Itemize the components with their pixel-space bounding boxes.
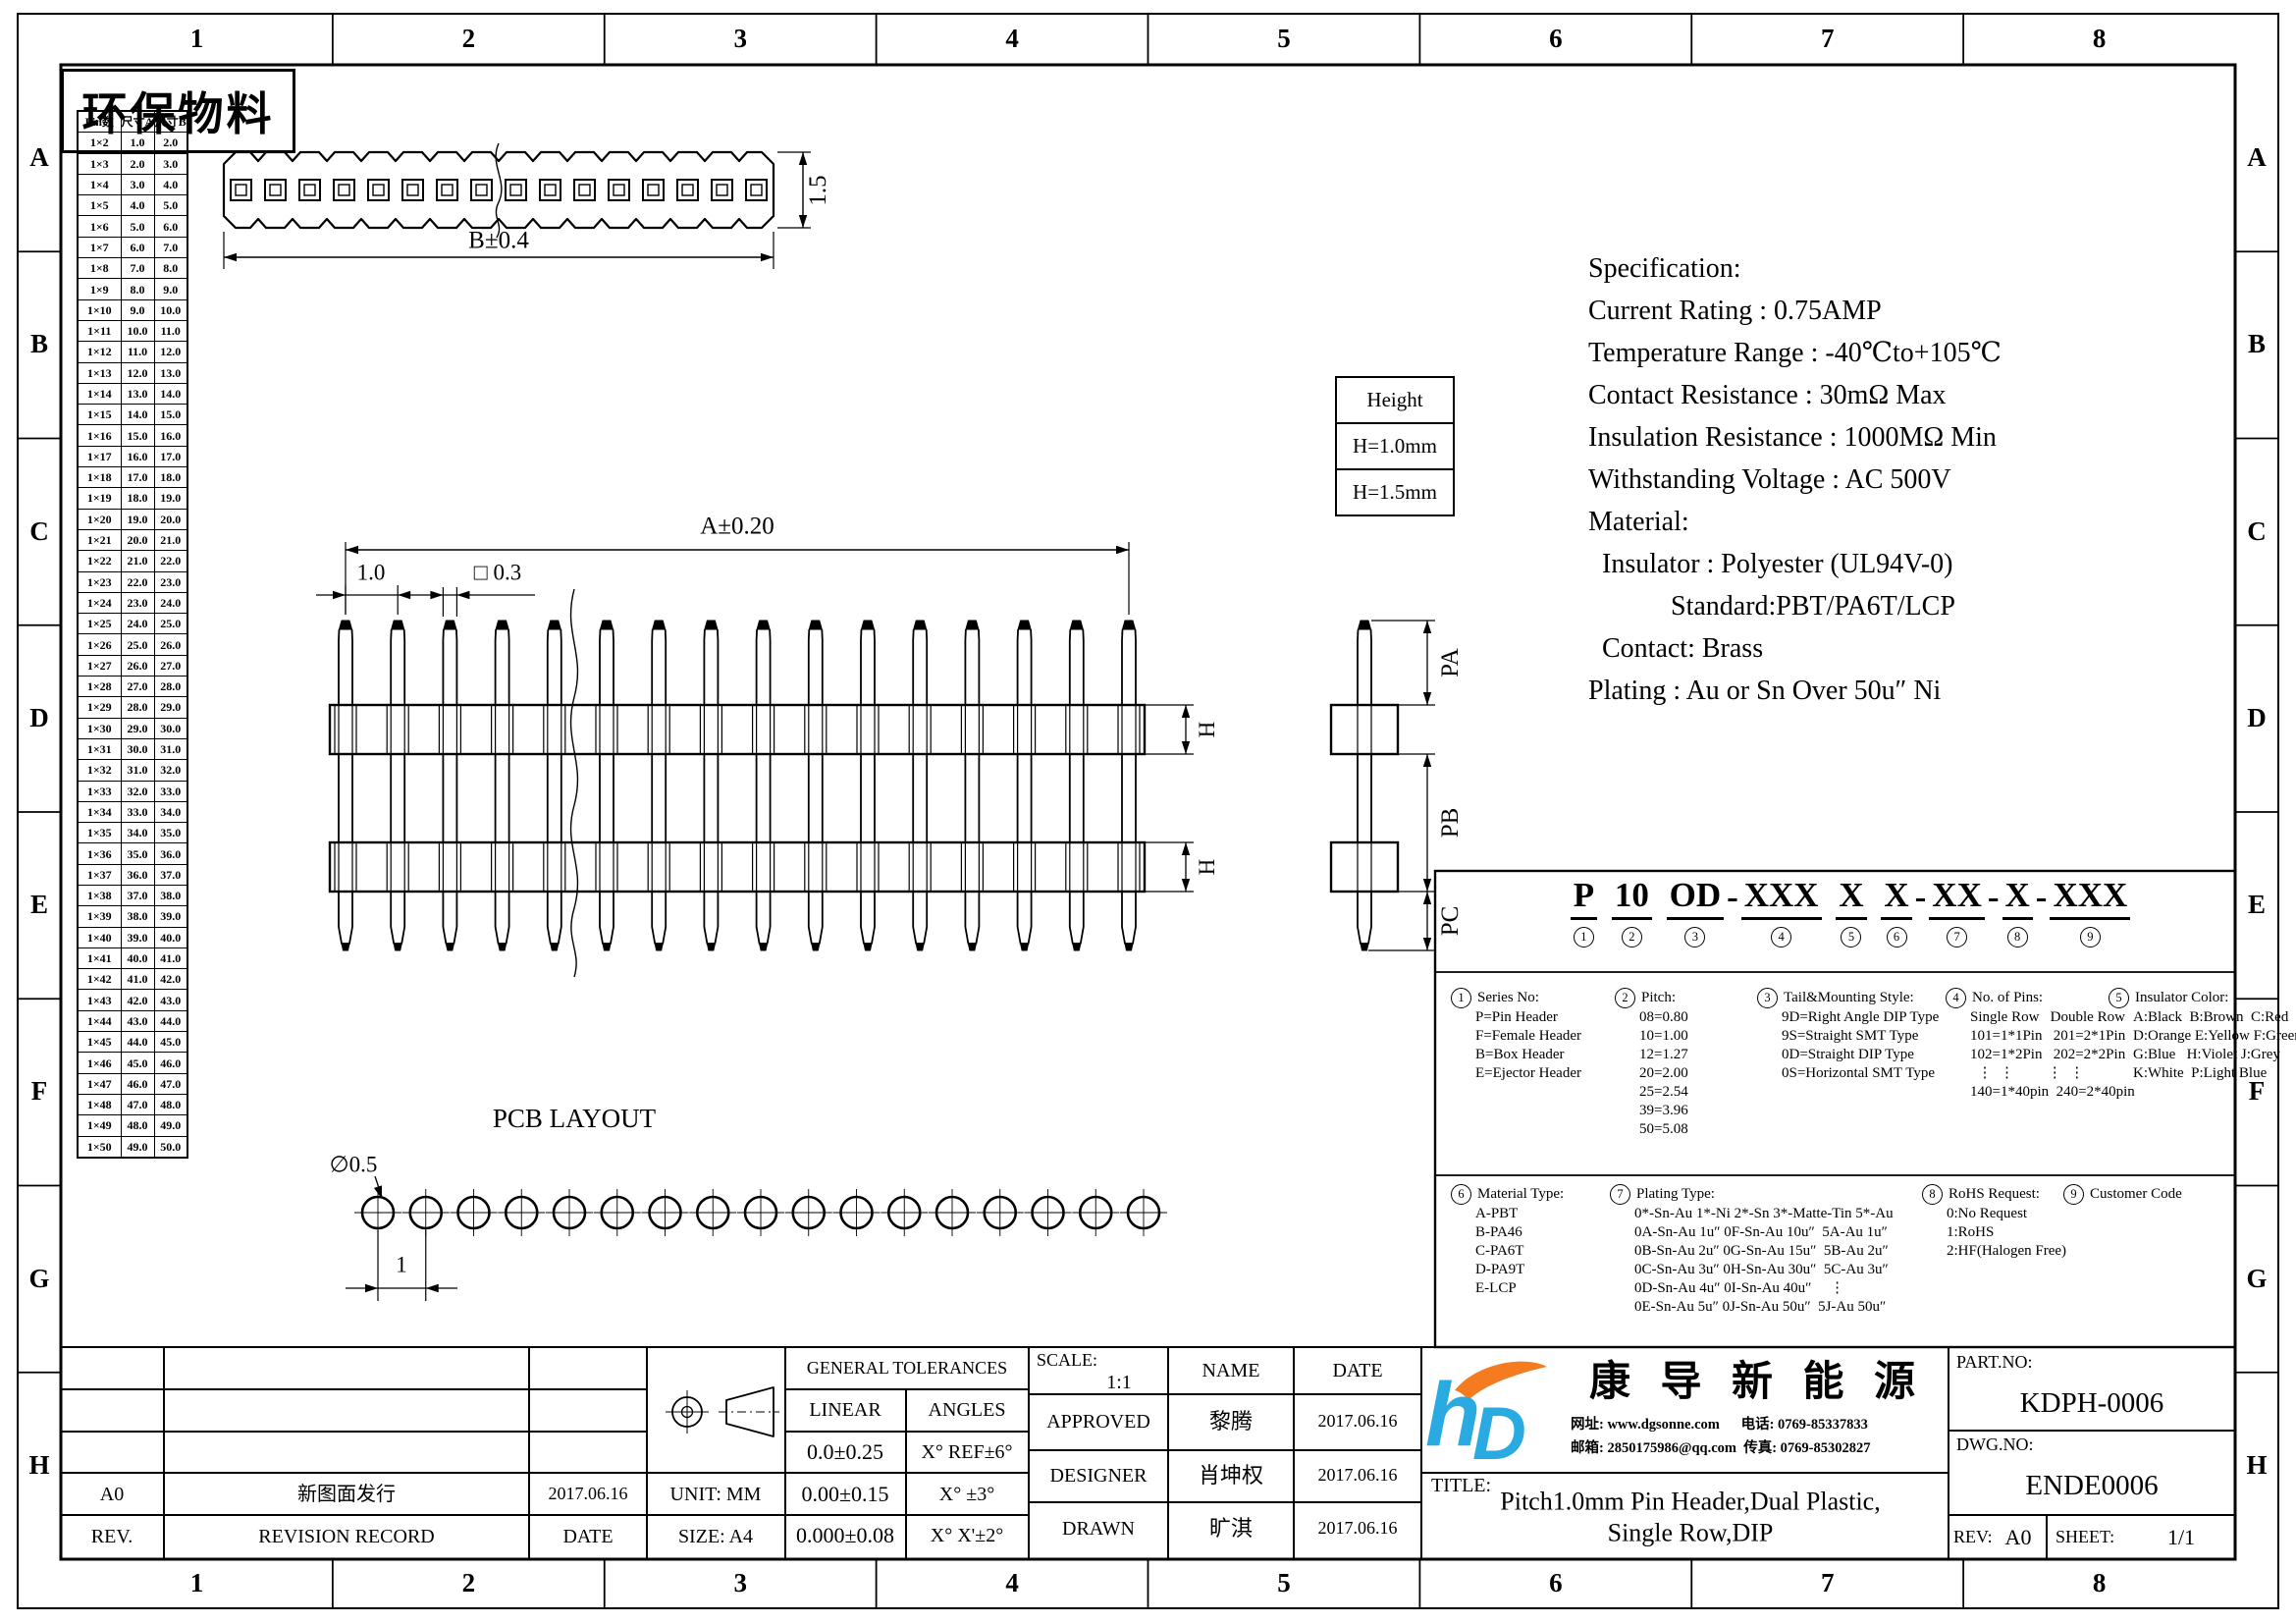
table-cell: 19.0	[154, 488, 187, 509]
table-cell: 5.0	[121, 216, 154, 237]
circled-number: 5	[2109, 988, 2129, 1008]
legend-title: 4No. of Pins:	[1946, 988, 2135, 1008]
legend-title: 5Insulator Color:	[2109, 988, 2296, 1008]
legend-line: C-PA6T	[1451, 1242, 1564, 1261]
table-cell: 1×45	[78, 1032, 121, 1053]
legend-line: 0D=Straight DIP Type	[1757, 1046, 1939, 1064]
table-row: 1×5049.050.0	[78, 1136, 187, 1158]
table-cell: 36.0	[121, 864, 154, 885]
zone-row-right: E	[2248, 891, 2266, 920]
legend-line: Single Row Double Row	[1946, 1008, 2135, 1027]
table-cell: 14.0	[154, 383, 187, 404]
table-row: 1×3433.034.0	[78, 801, 187, 822]
table-row: 1×32.03.0	[78, 153, 187, 174]
legend-column: 3Tail&Mounting Style:9D=Right Angle DIP …	[1757, 988, 1939, 1083]
zone-col-top: 5	[1277, 25, 1291, 54]
table-row: 1×3938.039.0	[78, 906, 187, 927]
zone-col-top: 7	[1821, 25, 1835, 54]
dim-label-pc: PC	[1437, 906, 1465, 937]
table-cell: 17.0	[154, 446, 187, 466]
table-cell: 37.0	[154, 864, 187, 885]
table-cell: 38.0	[121, 906, 154, 927]
scale-label: SCALE:	[1037, 1351, 1097, 1371]
spec-line: Plating : Au or Sn Over 50u″ Ni	[1588, 670, 2002, 712]
table-row: 1×1211.012.0	[78, 342, 187, 362]
part-code-text: P	[1571, 877, 1597, 920]
legend-column: 7Plating Type:0*-Sn-Au 1*-Ni 2*-Sn 3*-Ma…	[1610, 1184, 1894, 1317]
table-cell: 31.0	[121, 760, 154, 781]
spec-line: Contact: Brass	[1588, 627, 2002, 670]
table-cell: 17.0	[121, 467, 154, 488]
legend-line: D:Orange E:Yellow F:Green	[2109, 1027, 2296, 1046]
height-option-2: H=1.5mm	[1337, 470, 1453, 514]
circled-number: 9	[2080, 927, 2101, 947]
legend-line: 9S=Straight SMT Type	[1757, 1027, 1939, 1046]
drawing-sheet: 1122334455667788AABBCCDDEEFFGGHH 环保物料 Pi…	[0, 0, 2296, 1624]
legend-column: 9Customer Code	[2063, 1184, 2182, 1205]
legend-title-text: Series No:	[1477, 989, 1539, 1007]
part-code-segment: X5	[1836, 877, 1866, 947]
table-cell: 1×8	[78, 258, 121, 279]
table-cell: 4.0	[154, 174, 187, 194]
table-cell: 5.0	[154, 195, 187, 216]
table-row: 1×3332.033.0	[78, 781, 187, 801]
part-code-text: XXX	[2050, 877, 2130, 920]
table-cell: 1×34	[78, 801, 121, 822]
table-cell: 1×6	[78, 216, 121, 237]
table-row: 1×4948.049.0	[78, 1115, 187, 1136]
table-cell: 3.0	[121, 174, 154, 194]
table-cell: 34.0	[154, 801, 187, 822]
part-no-value: KDPH-0006	[2020, 1388, 2164, 1420]
dwg-no-label: DWG.NO:	[1956, 1435, 2034, 1455]
table-cell: 44.0	[154, 1010, 187, 1031]
circled-number: 2	[1615, 988, 1635, 1008]
table-cell: 41.0	[154, 947, 187, 968]
company-contact-1: 网址: www.dgsonne.com 电话: 0769-85337833	[1571, 1418, 1868, 1434]
part-code-segment: XXX4	[1741, 877, 1822, 947]
spec-line: Standard:PBT/PA6T/LCP	[1588, 585, 2002, 627]
part-number-code: P1 102 OD3-XXX4 X5 X6-XX7-X8-XXX9	[1517, 877, 2184, 947]
table-row: 1×4443.044.0	[78, 1010, 187, 1031]
table-cell: 13.0	[121, 383, 154, 404]
table-cell: 2.0	[121, 153, 154, 174]
table-row: 1×2221.022.0	[78, 551, 187, 571]
table-cell: 33.0	[154, 781, 187, 801]
table-cell: 7.0	[154, 237, 187, 257]
table-cell: 2.0	[154, 133, 187, 153]
table-cell: 1×39	[78, 906, 121, 927]
legend-line: G:Blue H:Violet J:Grey	[2109, 1046, 2296, 1064]
legend-title: 2Pitch:	[1615, 988, 1688, 1008]
revision-rev: A0	[100, 1484, 124, 1505]
legend-line: B-PA46	[1451, 1223, 1564, 1242]
table-cell: 1×29	[78, 697, 121, 718]
table-row: 1×2322.023.0	[78, 571, 187, 592]
part-code-separator	[1825, 877, 1834, 918]
part-code-segment: XXX9	[2050, 877, 2130, 947]
spec-line: Contact Resistance : 30mΩ Max	[1588, 374, 2002, 416]
table-cell: 28.0	[121, 697, 154, 718]
zone-row-right: D	[2247, 704, 2267, 733]
tolerances-linear-header: LINEAR	[809, 1399, 881, 1421]
circled-number: 1	[1451, 988, 1471, 1008]
part-code-text: X	[1836, 877, 1866, 920]
circled-number: 9	[2063, 1184, 2084, 1205]
dim-label-pitch: 1.0	[357, 560, 386, 584]
legend-line: 0A-Sn-Au 1u″ 0F-Sn-Au 10u″ 5A-Au 1u″	[1610, 1223, 1894, 1242]
zone-col-bottom: 8	[2093, 1569, 2107, 1598]
dim-label-pin-square: □ 0.3	[474, 560, 521, 584]
table-row: 1×4544.045.0	[78, 1032, 187, 1053]
approved-date: 2017.06.16	[1318, 1412, 1398, 1432]
table-cell: 16.0	[121, 446, 154, 466]
tol-linear-2: 0.00±0.15	[801, 1483, 888, 1506]
table-cell: 26.0	[121, 655, 154, 676]
table-cell: 12.0	[121, 362, 154, 383]
circled-number: 2	[1622, 927, 1642, 947]
date-header: DATE	[1332, 1360, 1382, 1381]
table-cell: 1×21	[78, 529, 121, 550]
table-row: 1×21.02.0	[78, 133, 187, 153]
circled-number: 7	[1947, 927, 1967, 947]
legend-line: 10=1.00	[1615, 1027, 1688, 1046]
rev-label: REV:	[1953, 1528, 1993, 1547]
zone-row-right: A	[2247, 143, 2267, 173]
dim-label-1-5: 1.5	[805, 175, 832, 205]
table-header-cell: Pin数	[78, 111, 121, 133]
table-cell: 1×10	[78, 299, 121, 320]
designer-name: 肖坤权	[1199, 1464, 1263, 1488]
legend-line: D-PA9T	[1451, 1261, 1564, 1279]
table-cell: 1×3	[78, 153, 121, 174]
table-row: 1×4342.043.0	[78, 990, 187, 1010]
drawn-date: 2017.06.16	[1318, 1519, 1398, 1539]
table-cell: 1×28	[78, 677, 121, 697]
table-cell: 6.0	[121, 237, 154, 257]
table-cell: 32.0	[121, 781, 154, 801]
table-cell: 4.0	[121, 195, 154, 216]
designer-label: DESIGNER	[1050, 1465, 1148, 1487]
legend-title: 8RoHS Request:	[1922, 1184, 2066, 1205]
table-cell: 1×24	[78, 592, 121, 613]
legend-title-text: No. of Pins:	[1972, 989, 2043, 1007]
drawing-title-line2: Single Row,DIP	[1608, 1520, 1774, 1548]
table-cell: 1×2	[78, 133, 121, 153]
part-code-text: XXX	[1741, 877, 1822, 920]
table-cell: 35.0	[121, 843, 154, 864]
table-cell: 45.0	[121, 1053, 154, 1073]
table-cell: 12.0	[154, 342, 187, 362]
table-cell: 36.0	[154, 843, 187, 864]
table-cell: 1×14	[78, 383, 121, 404]
table-cell: 3.0	[154, 153, 187, 174]
zone-row-right: H	[2246, 1451, 2267, 1481]
table-cell: 46.0	[121, 1073, 154, 1094]
table-cell: 8.0	[121, 279, 154, 299]
table-cell: 1×9	[78, 279, 121, 299]
table-row: 1×2120.021.0	[78, 529, 187, 550]
part-code-segment: P1	[1571, 877, 1597, 947]
table-row: 1×2625.026.0	[78, 634, 187, 655]
table-cell: 1×35	[78, 823, 121, 843]
table-cell: 22.0	[154, 551, 187, 571]
legend-line: 101=1*1Pin 201=2*1Pin	[1946, 1027, 2135, 1046]
zone-col-top: 6	[1549, 25, 1563, 54]
zone-row-left: D	[29, 704, 49, 733]
table-cell: 29.0	[121, 718, 154, 738]
table-cell: 28.0	[154, 677, 187, 697]
table-cell: 1×46	[78, 1053, 121, 1073]
spec-line: Insulation Resistance : 1000MΩ Min	[1588, 416, 2002, 459]
table-row: 1×3837.038.0	[78, 885, 187, 905]
tol-linear-1: 0.0±0.25	[807, 1440, 883, 1464]
zone-col-bottom: 1	[190, 1569, 204, 1598]
table-row: 1×1615.016.0	[78, 425, 187, 446]
table-cell: 1×41	[78, 947, 121, 968]
table-cell: 49.0	[121, 1136, 154, 1158]
table-row: 1×2019.020.0	[78, 509, 187, 529]
table-cell: 43.0	[121, 1010, 154, 1031]
table-cell: 47.0	[154, 1073, 187, 1094]
circled-number: 1	[1574, 927, 1594, 947]
scale-value: 1:1	[1106, 1372, 1132, 1393]
zone-row-right: B	[2248, 331, 2266, 360]
table-cell: 21.0	[154, 529, 187, 550]
legend-title-text: RoHS Request:	[1949, 1185, 2040, 1204]
legend-line: 0S=Horizontal SMT Type	[1757, 1064, 1939, 1083]
dim-label-a: A±0.20	[700, 513, 774, 540]
zone-row-left: A	[29, 143, 49, 173]
table-row: 1×2827.028.0	[78, 677, 187, 697]
table-cell: 42.0	[121, 990, 154, 1010]
table-cell: 24.0	[121, 614, 154, 634]
title-label: TITLE:	[1431, 1475, 1491, 1496]
table-cell: 20.0	[121, 529, 154, 550]
part-code-segment: XX7	[1929, 877, 1985, 947]
table-cell: 42.0	[154, 969, 187, 990]
table-cell: 13.0	[154, 362, 187, 383]
table-cell: 1×50	[78, 1136, 121, 1158]
drawn-label: DRAWN	[1062, 1518, 1135, 1540]
table-cell: 1×33	[78, 781, 121, 801]
legend-column: 2Pitch:08=0.8010=1.0012=1.2720=2.0025=2.…	[1615, 988, 1688, 1139]
table-cell: 43.0	[154, 990, 187, 1010]
company-contact-2: 邮箱: 2850175986@qq.com 传真: 0769-85302827	[1571, 1441, 1871, 1457]
table-cell: 45.0	[154, 1032, 187, 1053]
table-cell: 20.0	[154, 509, 187, 529]
table-row: 1×1514.015.0	[78, 405, 187, 425]
pcb-hole-pitch-label: 1	[396, 1252, 407, 1276]
table-cell: 1×48	[78, 1094, 121, 1114]
table-cell: 9.0	[121, 299, 154, 320]
tol-angle-2: X° ±3°	[939, 1484, 994, 1505]
legend-title: 9Customer Code	[2063, 1184, 2182, 1205]
table-row: 1×2423.024.0	[78, 592, 187, 613]
legend-line: ⋮ ⋮ ⋮ ⋮	[1946, 1064, 2135, 1083]
tolerances-title: GENERAL TOLERANCES	[807, 1359, 1007, 1379]
circled-number: 3	[1684, 927, 1705, 947]
table-cell: 1×16	[78, 425, 121, 446]
part-code-text: X	[2002, 877, 2033, 920]
legend-column: 1Series No:P=Pin HeaderF=Female HeaderB=…	[1451, 988, 1581, 1083]
company-logo: h D	[1425, 1351, 1565, 1471]
table-row: 1×54.05.0	[78, 195, 187, 216]
legend-line: 0:No Request	[1922, 1205, 2066, 1223]
table-row: 1×2726.027.0	[78, 655, 187, 676]
dwg-no-value: ENDE0006	[2025, 1471, 2158, 1502]
table-cell: 39.0	[121, 927, 154, 947]
table-cell: 33.0	[121, 801, 154, 822]
table-row: 1×76.07.0	[78, 237, 187, 257]
legend-line: 2:HF(Halogen Free)	[1922, 1242, 2066, 1261]
table-cell: 1×27	[78, 655, 121, 676]
table-row: 1×65.06.0	[78, 216, 187, 237]
table-cell: 22.0	[121, 571, 154, 592]
table-cell: 38.0	[154, 885, 187, 905]
zone-col-bottom: 4	[1005, 1569, 1019, 1598]
table-cell: 1×13	[78, 362, 121, 383]
designer-date: 2017.06.16	[1318, 1466, 1398, 1486]
zone-col-bottom: 2	[462, 1569, 476, 1598]
table-cell: 1×5	[78, 195, 121, 216]
table-row: 1×1110.011.0	[78, 320, 187, 341]
circled-number: 4	[1946, 988, 1966, 1008]
zone-row-left: F	[31, 1078, 48, 1108]
table-cell: 10.0	[121, 320, 154, 341]
revision-record: 新图面发行	[297, 1484, 396, 1505]
legend-title: 1Series No:	[1451, 988, 1581, 1008]
table-cell: 1×17	[78, 446, 121, 466]
table-cell: 1×12	[78, 342, 121, 362]
table-cell: 37.0	[121, 885, 154, 905]
table-cell: 27.0	[154, 655, 187, 676]
revision-record-header: REVISION RECORD	[258, 1526, 434, 1547]
table-row: 1×4645.046.0	[78, 1053, 187, 1073]
part-code-text: XX	[1929, 877, 1985, 920]
table-cell: 34.0	[121, 823, 154, 843]
table-cell: 48.0	[154, 1094, 187, 1114]
pcb-layout-title: PCB LAYOUT	[493, 1105, 656, 1134]
legend-title: 3Tail&Mounting Style:	[1757, 988, 1939, 1008]
table-cell: 1×43	[78, 990, 121, 1010]
part-code-text: 10	[1612, 877, 1652, 920]
legend-line: 39=3.96	[1615, 1102, 1688, 1120]
spec-line: Withstanding Voltage : AC 500V	[1588, 459, 2002, 501]
part-code-segment: 102	[1612, 877, 1652, 947]
part-code-separator: -	[1727, 877, 1738, 918]
legend-column: 5Insulator Color:A:Black B:Brown C:RedD:…	[2109, 988, 2296, 1083]
company-name: 康 导 新 能 源	[1589, 1360, 1925, 1405]
tolerances-angles-header: ANGLES	[929, 1399, 1006, 1421]
dim-label-pa: PA	[1437, 648, 1465, 677]
legend-line: K:White P:Light Blue	[2109, 1064, 2296, 1083]
part-code-separator: -	[1915, 877, 1927, 918]
dim-label-pb: PB	[1437, 808, 1465, 839]
circled-number: 4	[1771, 927, 1791, 947]
table-cell: 1×30	[78, 718, 121, 738]
table-cell: 1×15	[78, 405, 121, 425]
height-table: Height H=1.0mm H=1.5mm	[1335, 376, 1455, 516]
table-row: 1×1716.017.0	[78, 446, 187, 466]
table-cell: 9.0	[154, 279, 187, 299]
revision-date-header: DATE	[562, 1526, 613, 1547]
table-cell: 44.0	[121, 1032, 154, 1053]
table-cell: 23.0	[121, 592, 154, 613]
part-code-separator	[1655, 877, 1664, 918]
legend-title-text: Plating Type:	[1636, 1185, 1715, 1204]
drawn-name: 旷淇	[1209, 1517, 1253, 1541]
size-cell: SIZE: A4	[678, 1526, 753, 1547]
legend-line: 0C-Sn-Au 3u″ 0H-Sn-Au 30u″ 5C-Au 3u″	[1610, 1261, 1894, 1279]
approved-label: APPROVED	[1046, 1411, 1150, 1433]
spec-line: Insulator : Polyester (UL94V-0)	[1588, 543, 2002, 585]
table-cell: 39.0	[154, 906, 187, 927]
part-code-separator	[1600, 877, 1609, 918]
rev-value: A0	[2005, 1526, 2032, 1549]
table-cell: 1×25	[78, 614, 121, 634]
spec-line: Current Rating : 0.75AMP	[1588, 290, 2002, 332]
part-code-segment: X6	[1881, 877, 1911, 947]
table-cell: 1.0	[121, 133, 154, 153]
table-header-row: Pin数尺寸A尺寸B	[78, 111, 187, 133]
legend-line: F=Female Header	[1451, 1027, 1581, 1046]
table-row: 1×3534.035.0	[78, 823, 187, 843]
table-cell: 40.0	[121, 947, 154, 968]
table-row: 1×1413.014.0	[78, 383, 187, 404]
tol-linear-3: 0.000±0.08	[796, 1524, 894, 1547]
pcb-hole-dia-label: ∅0.5	[330, 1152, 378, 1176]
zone-row-left: B	[30, 331, 48, 360]
table-cell: 49.0	[154, 1115, 187, 1136]
table-cell: 1×49	[78, 1115, 121, 1136]
dim-label-h2: H	[1195, 859, 1220, 876]
table-cell: 50.0	[154, 1136, 187, 1158]
table-cell: 1×36	[78, 843, 121, 864]
table-row: 1×109.010.0	[78, 299, 187, 320]
table-row: 1×3130.031.0	[78, 738, 187, 759]
part-code-separator: -	[2036, 877, 2048, 918]
table-cell: 35.0	[154, 823, 187, 843]
table-cell: 1×44	[78, 1010, 121, 1031]
table-cell: 1×26	[78, 634, 121, 655]
table-row: 1×3736.037.0	[78, 864, 187, 885]
legend-title-text: Pitch:	[1641, 989, 1676, 1007]
zone-col-top: 4	[1005, 25, 1019, 54]
table-cell: 1×7	[78, 237, 121, 257]
dim-label-h1: H	[1195, 722, 1220, 738]
legend-line: A:Black B:Brown C:Red	[2109, 1008, 2296, 1027]
table-cell: 32.0	[154, 760, 187, 781]
legend-column: 8RoHS Request:0:No Request1:RoHS2:HF(Hal…	[1922, 1184, 2066, 1261]
table-cell: 1×19	[78, 488, 121, 509]
table-cell: 1×4	[78, 174, 121, 194]
table-cell: 19.0	[121, 509, 154, 529]
legend-title-text: Insulator Color:	[2135, 989, 2228, 1007]
tol-angle-3: X° X'±2°	[931, 1525, 1003, 1546]
legend-line: 9D=Right Angle DIP Type	[1757, 1008, 1939, 1027]
table-cell: 25.0	[121, 634, 154, 655]
table-header-cell: 尺寸A	[121, 111, 154, 133]
table-row: 1×4746.047.0	[78, 1073, 187, 1094]
table-row: 1×43.04.0	[78, 174, 187, 194]
table-cell: 1×18	[78, 467, 121, 488]
table-cell: 18.0	[121, 488, 154, 509]
legend-line: 50=5.08	[1615, 1120, 1688, 1139]
legend-title-text: Customer Code	[2090, 1185, 2182, 1204]
zone-row-left: H	[28, 1451, 49, 1481]
table-row: 1×2928.029.0	[78, 697, 187, 718]
